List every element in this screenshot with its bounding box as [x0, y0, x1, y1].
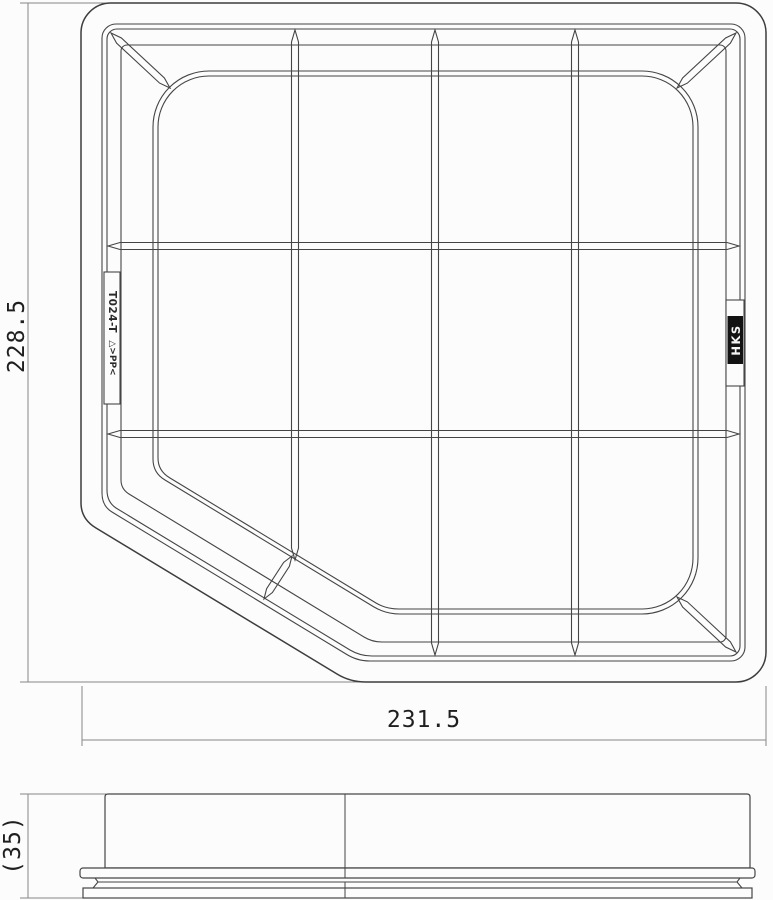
- technical-drawing-canvas: 228.5 231.5 (35) T024-T △>PP< HKS: [0, 0, 773, 900]
- side-view-gasket-step: [93, 878, 742, 888]
- material-marking-label: △>PP<: [107, 328, 117, 388]
- top-view-outer-outline: [81, 3, 766, 682]
- brand-logo-label: HKS: [729, 316, 743, 364]
- gasket-step-left: [93, 882, 98, 888]
- dimension-side-height-label: (35): [1, 795, 25, 895]
- side-view-body: [105, 794, 750, 868]
- filter-drawing-svg: [0, 0, 773, 900]
- side-view-foot: [83, 888, 752, 898]
- side-view-flange: [80, 868, 755, 878]
- dimension-width-label: 231.5: [364, 708, 484, 732]
- side-view-group: [80, 794, 755, 898]
- dimension-height-label: 228.5: [5, 276, 29, 396]
- gasket-step-right: [737, 882, 742, 888]
- top-view-group: [81, 3, 766, 682]
